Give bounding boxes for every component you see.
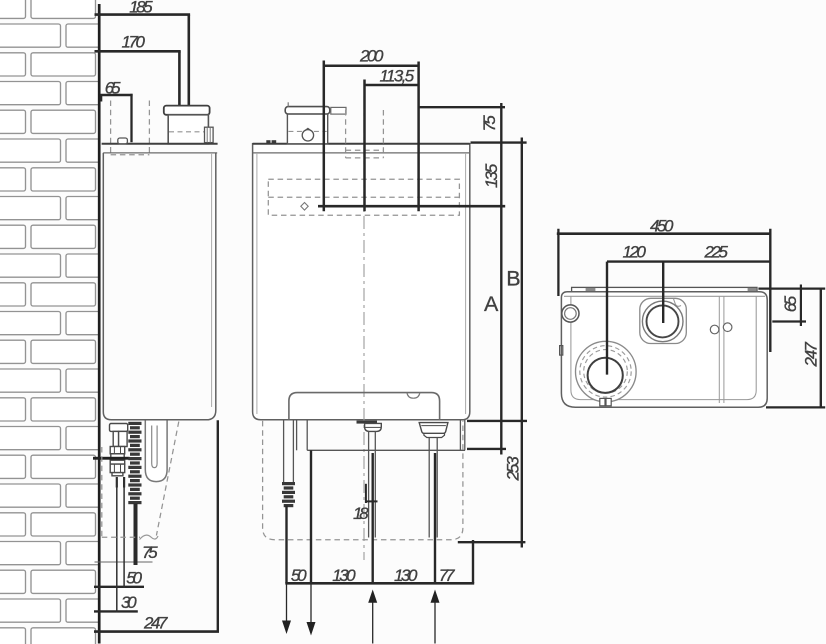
svg-text:253: 253 bbox=[504, 456, 523, 482]
svg-text:225: 225 bbox=[704, 243, 729, 262]
svg-text:75: 75 bbox=[480, 115, 499, 132]
svg-text:200: 200 bbox=[359, 47, 384, 66]
svg-text:65: 65 bbox=[781, 295, 800, 312]
svg-text:185: 185 bbox=[129, 0, 153, 17]
svg-text:247: 247 bbox=[143, 614, 168, 633]
svg-text:B: B bbox=[506, 266, 520, 290]
svg-text:50: 50 bbox=[291, 566, 307, 585]
svg-text:18: 18 bbox=[353, 504, 369, 523]
svg-text:A: A bbox=[484, 292, 499, 316]
svg-text:65: 65 bbox=[105, 79, 121, 98]
svg-text:247: 247 bbox=[802, 342, 821, 368]
svg-text:130: 130 bbox=[332, 566, 356, 585]
svg-text:50: 50 bbox=[126, 569, 142, 588]
svg-text:113,5: 113,5 bbox=[380, 67, 415, 86]
svg-text:120: 120 bbox=[623, 243, 647, 262]
svg-text:75: 75 bbox=[142, 543, 158, 562]
svg-text:170: 170 bbox=[122, 32, 146, 51]
svg-text:77: 77 bbox=[439, 566, 455, 585]
svg-text:135: 135 bbox=[482, 163, 501, 188]
svg-text:30: 30 bbox=[121, 593, 137, 612]
svg-text:130: 130 bbox=[394, 566, 418, 585]
svg-text:450: 450 bbox=[650, 217, 674, 236]
